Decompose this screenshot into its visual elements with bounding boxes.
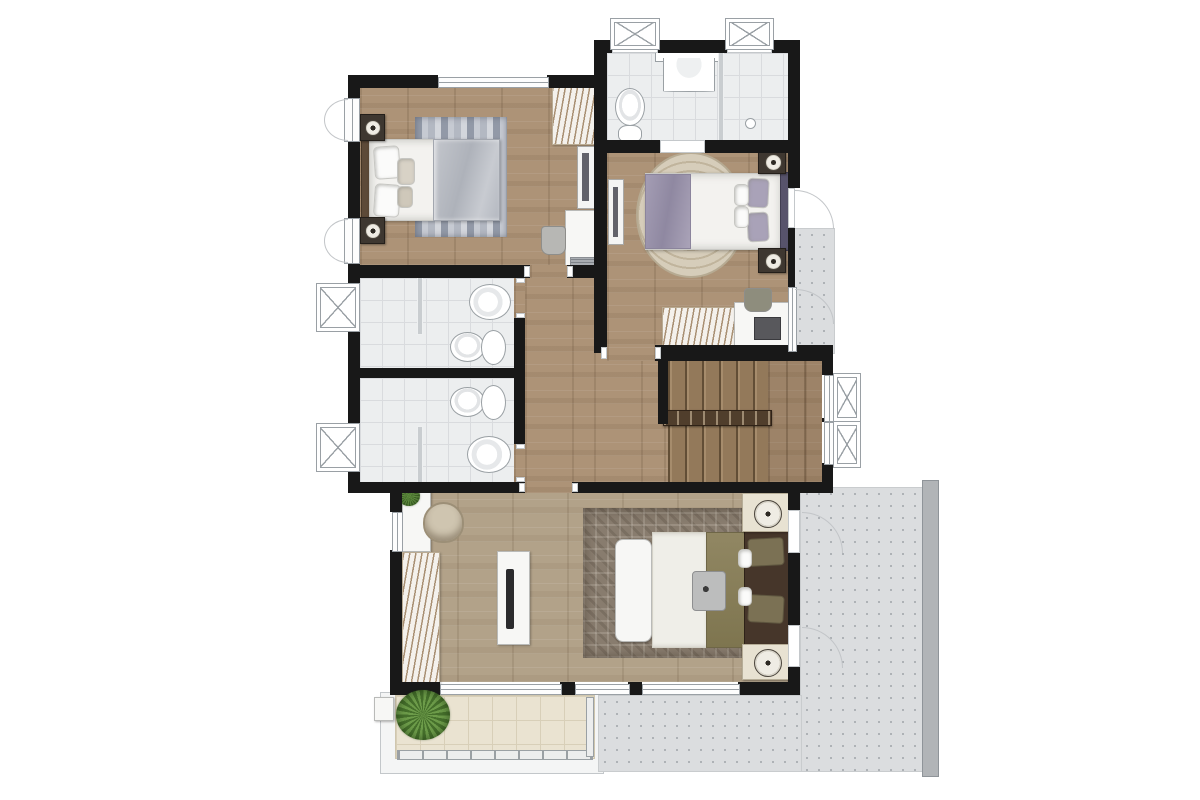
door-swing	[795, 190, 834, 229]
wall	[822, 353, 833, 375]
table-lamp	[365, 223, 381, 239]
door-jamb	[516, 444, 525, 449]
master-nightstand	[742, 644, 790, 680]
skylight-window	[725, 18, 774, 50]
balcony-plant	[396, 690, 450, 740]
toilet-bowl	[450, 387, 485, 417]
tv-screen	[506, 569, 514, 629]
bathroomA-toilet	[450, 330, 504, 364]
bathroomB-lightwell	[316, 423, 360, 472]
wall	[348, 75, 360, 98]
wall	[788, 40, 800, 188]
wall	[514, 318, 525, 444]
doorway-bathroomA	[514, 278, 525, 318]
wall	[348, 265, 530, 278]
bed-pillow	[746, 177, 770, 208]
shower-drain	[745, 118, 756, 129]
bedroom1-nightstand	[360, 114, 385, 141]
wall	[788, 490, 800, 510]
wall	[594, 40, 607, 353]
bedroom1-bed	[361, 139, 498, 219]
master-bottom-window	[575, 684, 630, 695]
wall	[822, 463, 833, 482]
master-bench	[615, 539, 652, 642]
toilet-tank	[481, 330, 506, 365]
door-jamb	[524, 266, 530, 277]
wall	[348, 368, 525, 378]
door-jamb	[516, 477, 525, 482]
bed-accent-pillow	[734, 184, 749, 206]
wall	[560, 682, 575, 695]
shower-partition	[719, 50, 723, 140]
table-lamp	[754, 500, 782, 528]
bed-accent-pillow	[738, 549, 752, 568]
bed-tray	[692, 571, 726, 611]
bedroom2-wardrobe	[662, 307, 737, 348]
bed-accent-pillow	[738, 587, 752, 606]
bathroomB-sink	[467, 436, 511, 473]
master-tub-chair	[423, 502, 464, 543]
wall	[594, 140, 660, 153]
table-lamp	[754, 649, 782, 677]
table-lamp	[765, 154, 782, 171]
master-bottom-window	[440, 684, 562, 695]
bedroom1-dresser-mirror	[577, 146, 595, 209]
wall	[547, 75, 594, 88]
master-left-window	[392, 512, 403, 552]
laptop	[754, 317, 781, 340]
wall	[658, 361, 668, 424]
bathroomA-sink	[469, 284, 511, 320]
mirror-glass	[582, 153, 589, 201]
bedroom2-nightstand	[758, 248, 786, 273]
master-nightstand	[742, 493, 790, 532]
doorway-bedroom1	[530, 265, 567, 278]
skylight-window	[610, 18, 660, 50]
door-jamb	[655, 347, 661, 359]
bedroom1-top-window	[438, 77, 549, 88]
stairs-landing	[768, 361, 822, 482]
stairwell-window-box	[833, 421, 861, 468]
wall	[628, 682, 642, 695]
table-lamp	[765, 253, 782, 270]
bathroomB-toilet	[450, 385, 504, 419]
toilet-tank	[481, 385, 506, 420]
terrace-floor-strip	[598, 695, 802, 772]
table-lamp	[365, 120, 381, 136]
bedroom1-nightstand	[360, 217, 385, 244]
master-wardrobe	[402, 552, 440, 685]
master-bottom-window	[642, 684, 740, 695]
doorway-master	[525, 482, 572, 493]
door-jamb	[516, 278, 525, 283]
wall	[348, 482, 525, 493]
bed-pillow	[747, 594, 784, 624]
wall	[788, 667, 800, 695]
bed-accent-pillow	[734, 206, 749, 228]
shower-partition	[418, 278, 422, 334]
bedroom1-wardrobe	[552, 83, 595, 145]
wall	[348, 75, 438, 88]
shower-partition	[418, 427, 422, 482]
bedroom2-bed	[645, 172, 788, 249]
door-jamb	[516, 313, 525, 318]
wall	[655, 345, 833, 361]
bed-pillow	[747, 537, 784, 567]
doorway-shared-bath	[660, 140, 705, 153]
door-jamb	[567, 266, 573, 277]
door-jamb	[572, 483, 578, 492]
bed-blanket	[645, 174, 691, 249]
casement-swing	[324, 219, 348, 263]
floor-plan	[0, 0, 1200, 800]
bed-accent-pillow	[397, 158, 415, 185]
balcony-railing-right	[586, 697, 594, 757]
master-tv-console	[497, 551, 530, 645]
bathroom-sink	[663, 58, 715, 92]
bedroom2-standing-mirror	[608, 179, 624, 245]
wall	[348, 140, 360, 218]
wall	[390, 550, 402, 692]
stairs-lower-flight	[668, 424, 768, 482]
stairs-railing	[663, 410, 772, 426]
hallway-floor	[525, 273, 594, 482]
doorway-terrace-2	[788, 625, 800, 667]
bedroom2-desk-chair	[744, 288, 772, 312]
bedroom1-desk-chair	[541, 226, 566, 255]
bed-pillow	[746, 211, 770, 242]
stairs-upper-flight	[668, 361, 768, 411]
stairwell-window-box	[833, 373, 861, 422]
bed-blanket	[433, 139, 500, 221]
wall	[658, 40, 727, 53]
master-bed	[652, 529, 790, 649]
casement-swing	[324, 99, 348, 141]
wall	[788, 228, 795, 287]
toilet-bowl	[450, 332, 485, 362]
doorway-terrace-1	[788, 510, 800, 553]
bed-accent-pillow	[397, 186, 413, 208]
door-jamb	[519, 483, 525, 492]
door-jamb	[601, 347, 607, 359]
balcony-railing-bottom	[397, 750, 593, 760]
wall	[390, 490, 402, 512]
mirror-glass	[613, 187, 618, 237]
doorway-bedroom2	[607, 345, 655, 361]
wall	[705, 140, 800, 153]
balcony-fixture	[374, 697, 394, 721]
terrace-edge-wall	[922, 480, 939, 777]
wall	[788, 553, 800, 625]
doorway-bedroom2-balcony	[788, 188, 795, 228]
toilet-bowl	[615, 88, 645, 126]
bathroom-toilet	[612, 88, 646, 142]
hallway-floor-lower	[594, 345, 668, 482]
bathroomA-lightwell	[316, 283, 360, 332]
